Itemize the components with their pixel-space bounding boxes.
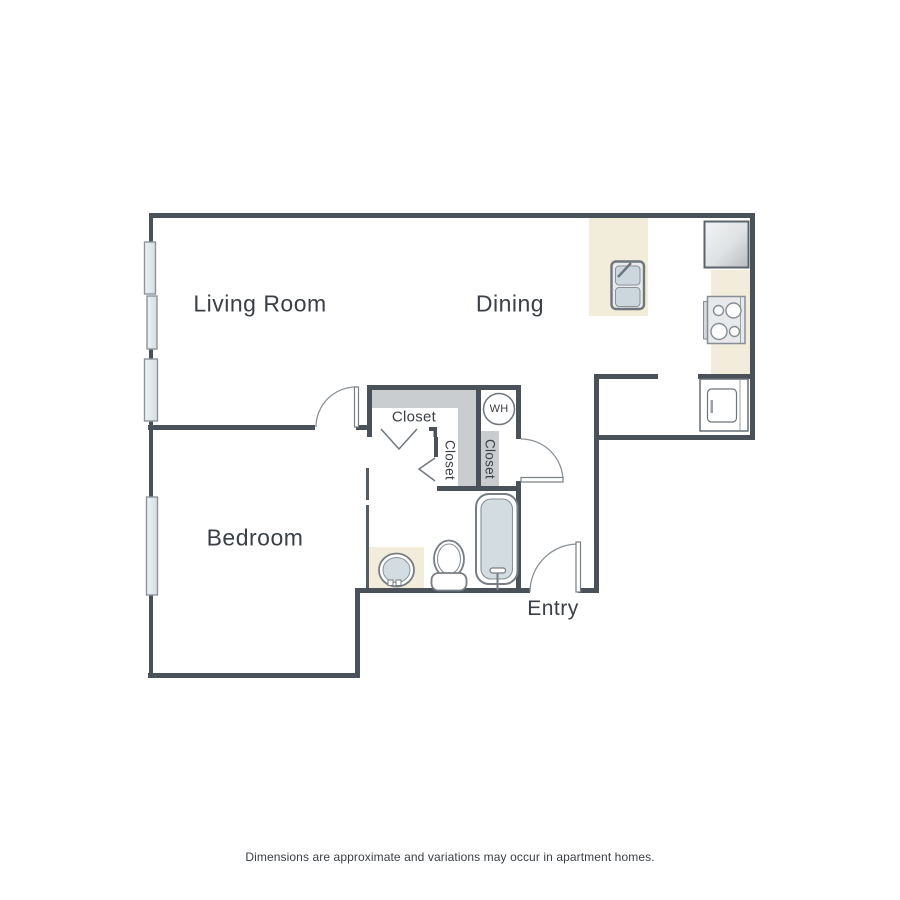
water-heater-label: WH	[490, 403, 509, 415]
door-swing-arc	[521, 439, 563, 481]
closet-left-label: Closet	[443, 440, 458, 480]
burner-icon	[711, 324, 727, 340]
toilet	[432, 541, 467, 591]
stove-cooktop	[704, 297, 746, 344]
wall-closet-corner	[434, 427, 438, 437]
door-swing-arc	[316, 387, 356, 427]
burner-icon	[730, 327, 740, 337]
vanity-sink	[379, 554, 414, 587]
wall-left	[149, 595, 153, 678]
bifold-door-icon	[419, 458, 435, 481]
faucet-icon	[388, 580, 393, 586]
bathtub	[476, 494, 518, 590]
closet-shelf	[458, 408, 476, 486]
sink-bowl	[383, 558, 410, 583]
wall-closet-jamb	[434, 437, 438, 457]
window-icon	[145, 359, 158, 421]
thin-walls	[366, 468, 369, 588]
burner-icon	[714, 306, 724, 316]
wall-left	[149, 421, 153, 497]
kitchen-sink	[612, 262, 645, 310]
door-leaf	[576, 542, 581, 592]
window-icon	[147, 296, 157, 349]
wall-closet-left	[367, 385, 372, 437]
window-icon	[147, 497, 158, 595]
faucet-icon	[396, 580, 401, 586]
wall-kitchen-right	[750, 213, 755, 440]
wall-bedroom-bottom	[148, 673, 360, 678]
appliance-handle	[711, 400, 714, 413]
refrigerator-icon	[705, 222, 749, 268]
wall-hall-right	[594, 374, 599, 593]
wall-closet-middle	[476, 385, 481, 491]
disclaimer-text: Dimensions are approximate and variation…	[245, 850, 654, 864]
wall-bedroom-bath	[366, 468, 369, 500]
wall-left	[149, 349, 153, 359]
floorplan-canvas: Living Room Dining Bedroom Entry Closet …	[0, 0, 900, 900]
toilet-base	[432, 573, 467, 591]
closet-wh-label: Closet	[483, 439, 498, 479]
closet-shelf	[372, 390, 476, 408]
door-leaf	[355, 387, 359, 427]
tub-inner	[481, 499, 513, 579]
bifold-door-icon	[381, 429, 417, 449]
washer-appliance	[700, 379, 748, 431]
wall-bath-top	[437, 486, 521, 491]
entry-label: Entry	[527, 597, 579, 621]
wall-nook-bottom	[594, 435, 755, 440]
wall-bedroom-right	[355, 590, 360, 678]
door-leaf	[521, 478, 563, 483]
wall-bedroom-bath	[366, 505, 369, 588]
closet-top-label: Closet	[392, 409, 436, 426]
burner-icon	[726, 303, 741, 318]
bedroom-label: Bedroom	[207, 525, 304, 552]
wall-closet-top	[367, 385, 521, 390]
windows	[145, 242, 158, 595]
wall-whcloset-right	[516, 385, 521, 439]
door-swing-arc	[530, 544, 578, 592]
wall-left	[149, 213, 153, 242]
tub-faucet	[490, 568, 506, 573]
wall-top	[149, 213, 755, 218]
toilet-bowl-inner	[438, 544, 461, 574]
sink-basin	[616, 288, 641, 307]
dining-label: Dining	[476, 291, 544, 318]
wall-nook-top	[594, 374, 658, 379]
living-room-label: Living Room	[193, 291, 326, 318]
window-icon	[145, 242, 156, 294]
wall-living-bottom	[148, 425, 315, 430]
